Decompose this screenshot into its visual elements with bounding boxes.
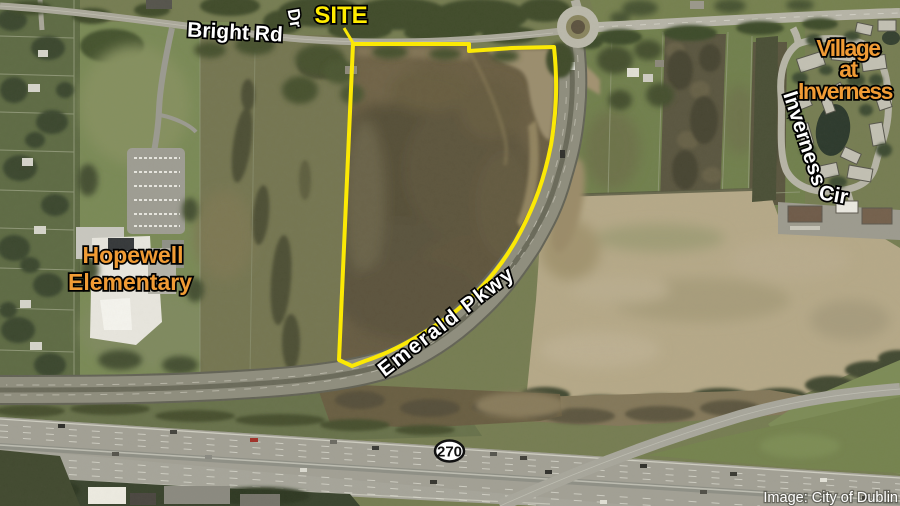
svg-text:Hopewell: Hopewell: [83, 242, 184, 268]
svg-text:Inverness: Inverness: [798, 78, 893, 104]
svg-text:Dr: Dr: [284, 7, 306, 29]
svg-text:270: 270: [437, 444, 462, 461]
svg-text:Image: City of Dublin: Image: City of Dublin: [763, 490, 898, 506]
svg-text:SITE: SITE: [314, 2, 367, 29]
svg-text:Elementary: Elementary: [68, 269, 192, 295]
